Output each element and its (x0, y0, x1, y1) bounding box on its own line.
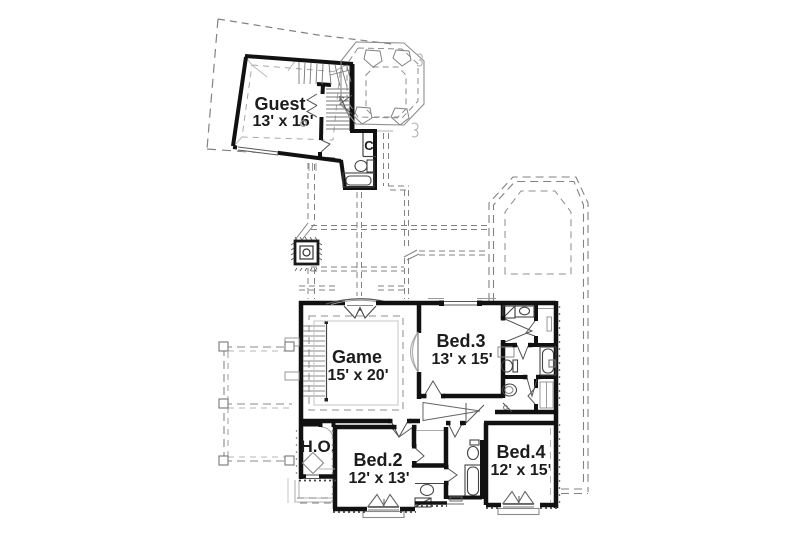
svg-text:13' x 15': 13' x 15' (432, 351, 493, 368)
svg-text:H.O.: H.O. (301, 437, 336, 456)
svg-text:15' x 20': 15' x 20' (328, 367, 389, 384)
svg-text:Guest: Guest (254, 94, 305, 114)
svg-text:Bed.3: Bed.3 (436, 331, 485, 351)
svg-text:13' x 16': 13' x 16' (253, 113, 314, 130)
svg-text:C: C (364, 138, 374, 153)
svg-text:Bed.2: Bed.2 (353, 450, 402, 470)
svg-text:12' x 15': 12' x 15' (491, 462, 552, 479)
svg-text:Game: Game (332, 347, 382, 367)
svg-text:12' x 13': 12' x 13' (349, 470, 410, 487)
svg-text:Bed.4: Bed.4 (496, 442, 545, 462)
